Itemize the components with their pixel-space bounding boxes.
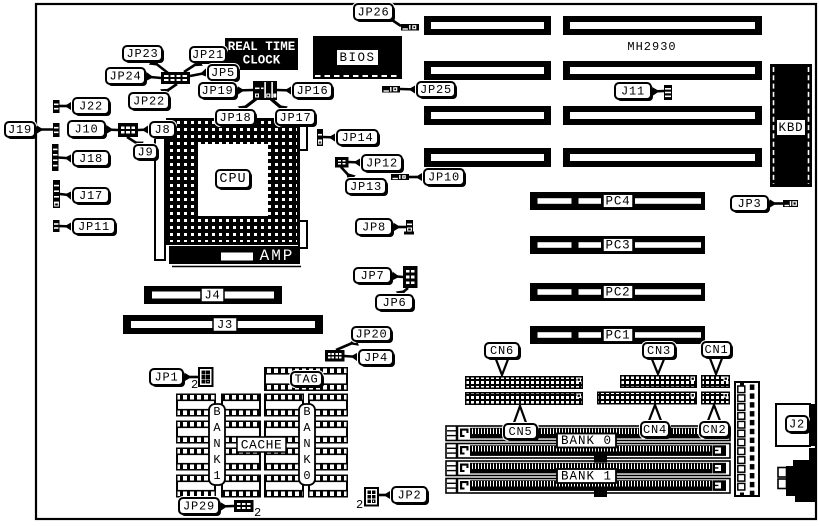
svg-text:CN2: CN2 bbox=[702, 423, 726, 437]
svg-text:PC4: PC4 bbox=[606, 195, 631, 209]
svg-text:JP26: JP26 bbox=[357, 6, 389, 20]
svg-text:JP19: JP19 bbox=[201, 84, 233, 98]
svg-text:KBD: KBD bbox=[779, 121, 804, 135]
svg-text:JP13: JP13 bbox=[350, 180, 382, 194]
svg-text:N: N bbox=[213, 437, 220, 451]
svg-text:J18: J18 bbox=[79, 152, 103, 166]
svg-text:J17: J17 bbox=[79, 189, 103, 203]
svg-text:JP16: JP16 bbox=[296, 84, 328, 98]
svg-text:MH2930: MH2930 bbox=[627, 40, 676, 54]
svg-text:CN4: CN4 bbox=[643, 423, 667, 437]
svg-text:JP11: JP11 bbox=[78, 220, 110, 234]
svg-text:JP8: JP8 bbox=[362, 221, 386, 235]
svg-text:AMP: AMP bbox=[260, 247, 295, 265]
svg-text:J3: J3 bbox=[217, 318, 233, 332]
svg-text:CACHE: CACHE bbox=[241, 438, 283, 453]
svg-text:PC3: PC3 bbox=[606, 239, 631, 253]
svg-text:J22: J22 bbox=[79, 100, 103, 114]
svg-text:JP29: JP29 bbox=[183, 500, 215, 514]
svg-text:JP1: JP1 bbox=[154, 371, 178, 385]
svg-text:JP12: JP12 bbox=[366, 157, 398, 171]
svg-text:JP20: JP20 bbox=[355, 328, 387, 342]
svg-text:J2: J2 bbox=[789, 418, 805, 432]
svg-text:BIOS: BIOS bbox=[339, 51, 375, 65]
svg-text:J8: J8 bbox=[154, 123, 170, 137]
svg-text:A: A bbox=[213, 421, 221, 435]
svg-text:JP21: JP21 bbox=[192, 48, 224, 62]
svg-text:JP6: JP6 bbox=[382, 296, 406, 310]
svg-text:JP4: JP4 bbox=[364, 351, 388, 365]
svg-text:K: K bbox=[213, 453, 221, 467]
svg-text:JP25: JP25 bbox=[420, 83, 452, 97]
svg-text:JP18: JP18 bbox=[219, 111, 251, 125]
svg-text:CN1: CN1 bbox=[704, 343, 728, 357]
svg-text:B: B bbox=[213, 405, 220, 419]
svg-text:JP10: JP10 bbox=[428, 171, 460, 185]
svg-text:REAL TIME: REAL TIME bbox=[228, 40, 296, 54]
svg-text:JP14: JP14 bbox=[341, 131, 373, 145]
svg-text:JP5: JP5 bbox=[211, 66, 235, 80]
svg-text:J11: J11 bbox=[621, 85, 645, 99]
svg-text:CN3: CN3 bbox=[647, 344, 671, 358]
svg-text:BANK 1: BANK 1 bbox=[561, 470, 612, 484]
svg-text:JP24: JP24 bbox=[109, 70, 141, 84]
svg-text:2: 2 bbox=[356, 498, 363, 512]
svg-text:A: A bbox=[303, 421, 311, 435]
svg-text:2: 2 bbox=[191, 378, 198, 392]
svg-text:B: B bbox=[303, 405, 310, 419]
svg-text:CN6: CN6 bbox=[490, 344, 514, 358]
svg-text:CLOCK: CLOCK bbox=[243, 54, 281, 68]
svg-text:PC1: PC1 bbox=[606, 329, 631, 343]
svg-text:BANK 0: BANK 0 bbox=[561, 434, 612, 448]
svg-text:PC2: PC2 bbox=[606, 286, 631, 300]
svg-text:N: N bbox=[303, 437, 310, 451]
svg-text:CN5: CN5 bbox=[508, 425, 532, 439]
svg-text:JP2: JP2 bbox=[397, 489, 421, 503]
svg-text:K: K bbox=[303, 453, 311, 467]
svg-text:JP3: JP3 bbox=[737, 197, 761, 211]
svg-text:1: 1 bbox=[213, 469, 220, 483]
svg-text:JP17: JP17 bbox=[279, 111, 311, 125]
svg-text:J10: J10 bbox=[74, 123, 98, 137]
svg-text:J9: J9 bbox=[137, 146, 153, 160]
svg-text:CPU: CPU bbox=[219, 172, 246, 187]
svg-text:JP22: JP22 bbox=[133, 95, 165, 109]
svg-text:0: 0 bbox=[303, 469, 310, 483]
svg-text:2: 2 bbox=[254, 506, 261, 520]
svg-text:JP23: JP23 bbox=[126, 47, 158, 61]
svg-text:TAG: TAG bbox=[294, 373, 318, 387]
svg-text:JP7: JP7 bbox=[360, 269, 384, 283]
svg-text:J19: J19 bbox=[8, 123, 32, 137]
svg-text:J4: J4 bbox=[204, 289, 220, 303]
